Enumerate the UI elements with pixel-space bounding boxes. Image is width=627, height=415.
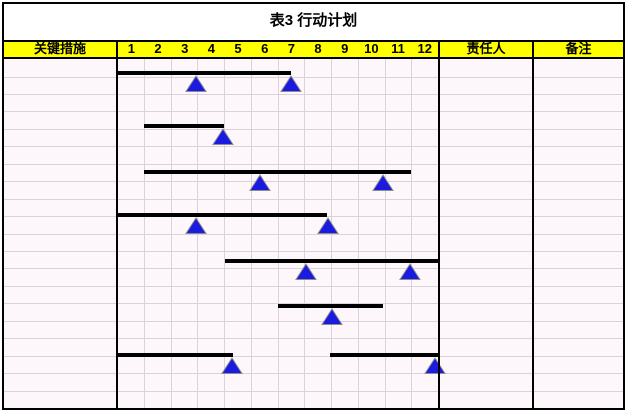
month-label: 3 bbox=[171, 41, 198, 58]
gantt-chart-area bbox=[117, 59, 438, 408]
milestone-triangle-icon bbox=[212, 128, 234, 146]
column-header-notes: 备注 bbox=[534, 41, 623, 58]
month-label: 12 bbox=[411, 41, 438, 58]
column-header-measures: 关键措施 bbox=[4, 41, 116, 58]
milestone-triangle-icon bbox=[295, 263, 317, 281]
column-header-owner: 责任人 bbox=[440, 41, 532, 58]
month-header-cell: 123456789101112 bbox=[118, 41, 438, 58]
separator-months-owner bbox=[438, 40, 440, 410]
milestone-triangle-icon bbox=[280, 75, 302, 93]
month-label: 6 bbox=[251, 41, 278, 58]
milestone-triangle-icon bbox=[424, 357, 446, 375]
month-label: 2 bbox=[145, 41, 172, 58]
month-label: 4 bbox=[198, 41, 225, 58]
month-label: 1 bbox=[118, 41, 145, 58]
milestone-triangle-icon bbox=[399, 263, 421, 281]
milestone-triangle-icon bbox=[372, 174, 394, 192]
gantt-bar-segment bbox=[144, 170, 412, 174]
gantt-bar-segment bbox=[330, 353, 438, 357]
month-label: 9 bbox=[331, 41, 358, 58]
separator-owner-notes bbox=[532, 40, 534, 410]
month-label: 8 bbox=[305, 41, 332, 58]
action-plan-page: { "title": "表3 行动计划", "header": { "measu… bbox=[0, 0, 627, 415]
gantt-bar-segment bbox=[117, 213, 327, 217]
milestone-triangle-icon bbox=[249, 174, 271, 192]
separator-measures-months bbox=[116, 40, 118, 410]
month-label: 5 bbox=[225, 41, 252, 58]
milestone-triangle-icon bbox=[185, 75, 207, 93]
gantt-bar-segment bbox=[233, 353, 329, 357]
month-label: 7 bbox=[278, 41, 305, 58]
month-label: 11 bbox=[385, 41, 412, 58]
table-title: 表3 行动计划 bbox=[4, 4, 623, 38]
month-label: 10 bbox=[358, 41, 385, 58]
milestone-triangle-icon bbox=[317, 217, 339, 235]
milestone-triangle-icon bbox=[221, 357, 243, 375]
milestone-triangle-icon bbox=[321, 308, 343, 326]
gantt-bar-segment bbox=[117, 353, 233, 357]
gantt-bar-segment bbox=[291, 71, 437, 75]
milestone-triangle-icon bbox=[185, 217, 207, 235]
